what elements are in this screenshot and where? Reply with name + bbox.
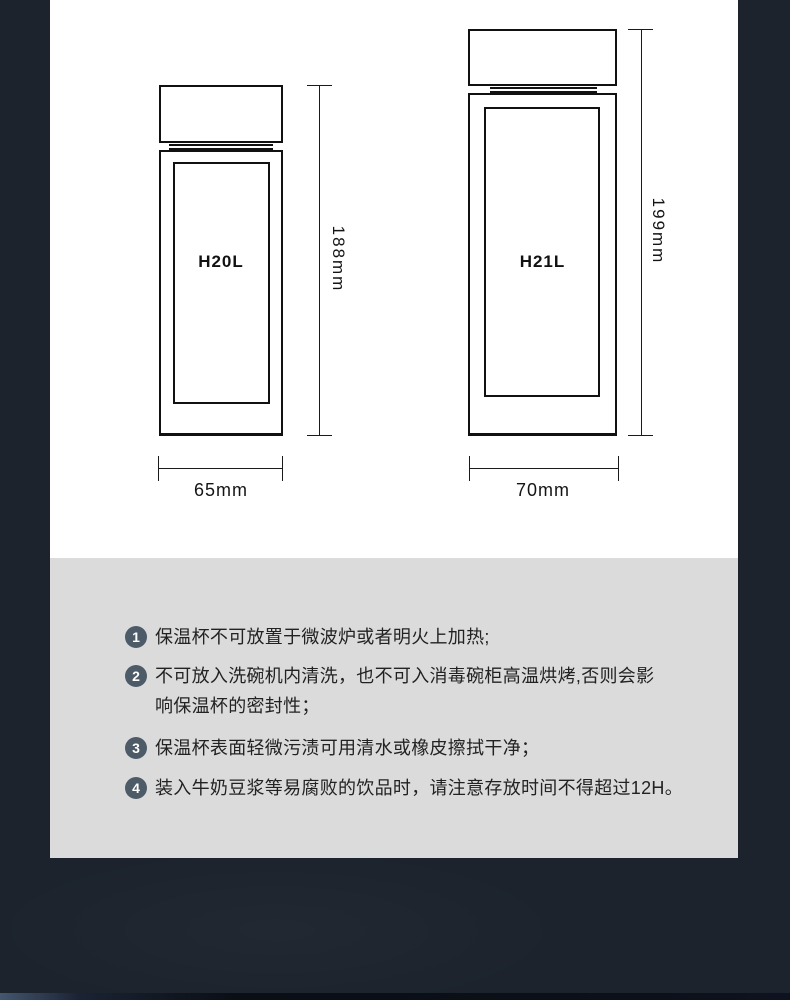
bottle-h21l-cap (468, 29, 617, 86)
h21l-width-dim-line (469, 468, 619, 469)
h20l-width-dim-tick-right (282, 456, 283, 481)
note-4-number-badge: 4 (125, 777, 147, 799)
note-2-line-1: 不可放入洗碗机内清洗，也不可入消毒碗柜高温烘烤,否则会影 (155, 661, 654, 691)
h21l-width-dim-tick-right (618, 456, 619, 481)
h21l-height-dim-line (641, 29, 642, 436)
h20l-height-dim-cap-top (307, 85, 332, 86)
note-1-text: 保温杯不可放置于微波炉或者明火上加热; (155, 622, 490, 652)
spec-diagram-panel: H20L 188mm 65mm H21L 199mm (50, 0, 738, 558)
note-2-text: 不可放入洗碗机内清洗，也不可入消毒碗柜高温烘烤,否则会影 响保温杯的密封性； (155, 661, 654, 721)
bottle-h20l-inner-panel (173, 162, 270, 404)
note-3-line-1: 保温杯表面轻微污渍可用清水或橡皮擦拭干净； (155, 733, 539, 763)
bottle-h21l-model-label: H21L (468, 252, 617, 272)
note-item-1: 1 保温杯不可放置于微波炉或者明火上加热; (125, 622, 490, 652)
h21l-width-dim-tick-left (469, 456, 470, 481)
note-3-number-badge: 3 (125, 737, 147, 759)
h20l-width-value: 65mm (171, 480, 271, 501)
bottle-h20l-cap (159, 85, 283, 143)
note-1-number-badge: 1 (125, 626, 147, 648)
product-detail-page: H20L 188mm 65mm H21L 199mm (0, 0, 790, 1000)
h21l-height-dim-cap-bottom (628, 435, 653, 436)
note-4-line-1: 装入牛奶豆浆等易腐败的饮品时，请注意存放时间不得超过12H。 (155, 773, 683, 803)
h20l-height-value: 188mm (328, 219, 348, 299)
h21l-height-value: 199mm (648, 191, 668, 271)
h20l-width-dim-line (158, 468, 283, 469)
bottle-h20l-model-label: H20L (159, 252, 283, 272)
h20l-height-dim-cap-bottom (307, 435, 332, 436)
note-item-3: 3 保温杯表面轻微污渍可用清水或橡皮擦拭干净； (125, 733, 539, 763)
h21l-height-dim-cap-top (628, 29, 653, 30)
note-4-text: 装入牛奶豆浆等易腐败的饮品时，请注意存放时间不得超过12H。 (155, 773, 683, 803)
note-1-line-1: 保温杯不可放置于微波炉或者明火上加热; (155, 622, 490, 652)
note-item-2: 2 不可放入洗碗机内清洗，也不可入消毒碗柜高温烘烤,否则会影 响保温杯的密封性； (125, 661, 654, 721)
note-2-number-badge: 2 (125, 665, 147, 687)
care-notes-panel: 1 保温杯不可放置于微波炉或者明火上加热; 2 不可放入洗碗机内清洗，也不可入消… (50, 558, 738, 858)
note-3-text: 保温杯表面轻微污渍可用清水或橡皮擦拭干净； (155, 733, 539, 763)
note-item-4: 4 装入牛奶豆浆等易腐败的饮品时，请注意存放时间不得超过12H。 (125, 773, 683, 803)
h20l-height-dim-line (319, 85, 320, 436)
h21l-width-value: 70mm (493, 480, 593, 501)
note-2-line-2: 响保温杯的密封性； (155, 691, 654, 721)
bottom-divider-strip (0, 993, 790, 1000)
h20l-width-dim-tick-left (158, 456, 159, 481)
